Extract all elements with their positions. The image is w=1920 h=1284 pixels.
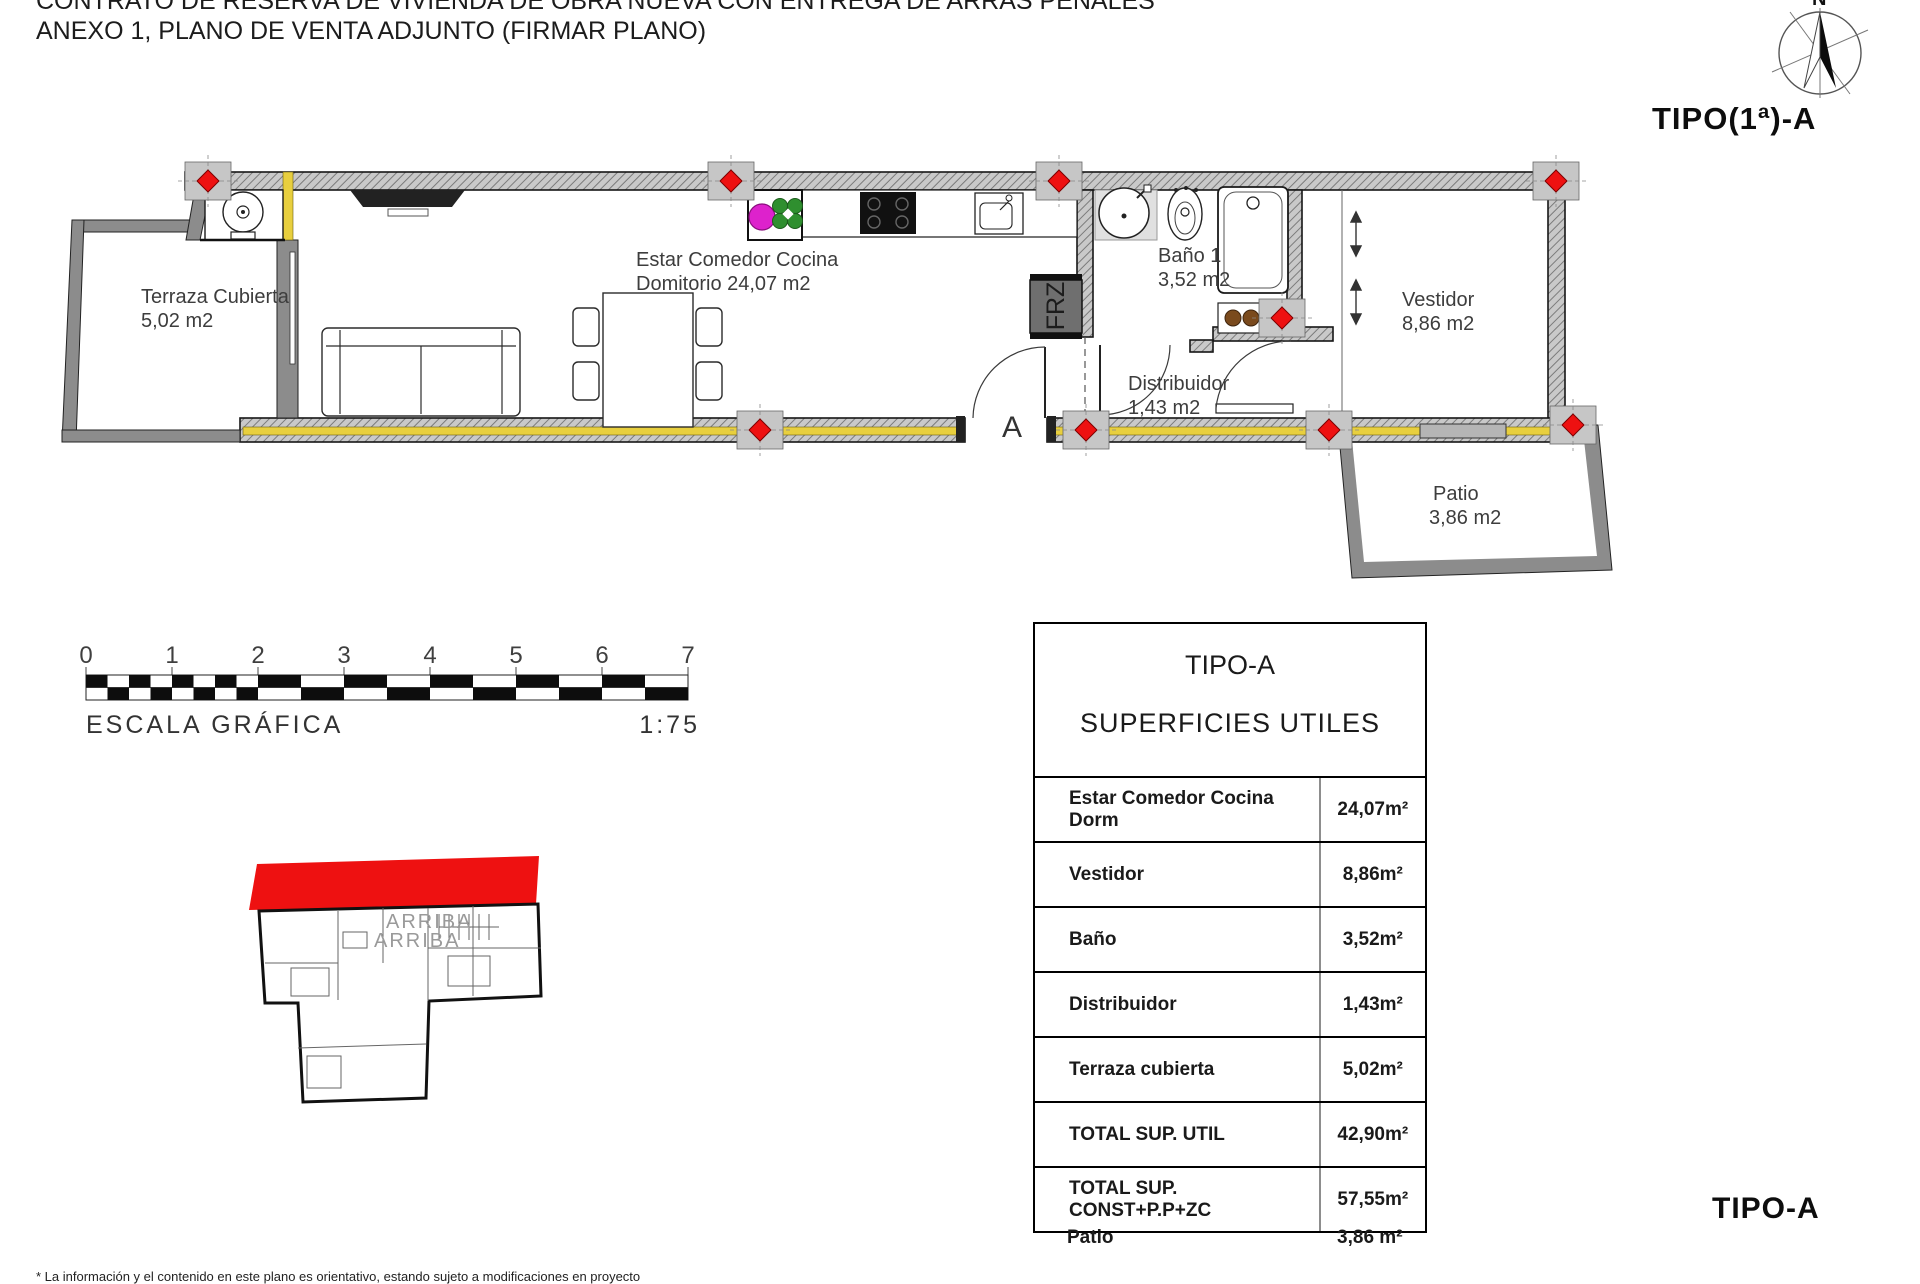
scale-tick-2: 2 xyxy=(251,642,264,669)
table-row: Distribuidor 1,43m² xyxy=(1035,973,1425,1038)
dining-table-icon xyxy=(573,293,722,427)
room-area-terraza: 5,02 m2 xyxy=(141,310,213,332)
toilet-icon xyxy=(1168,186,1202,240)
type-label-top: TIPO(1ª)-A xyxy=(1652,101,1816,137)
table-row: Terraza cubierta 5,02m² xyxy=(1035,1038,1425,1103)
stairs-label-2: ARRIBA xyxy=(374,930,460,952)
patio-extra-row: Patio 3,86 m² xyxy=(1033,1210,1423,1266)
document-header: CONTRATO DE RESERVA DE VIVIENDA DE OBRA … xyxy=(36,0,1155,46)
cooktop-icon xyxy=(860,192,916,234)
document-title-line1: CONTRATO DE RESERVA DE VIVIENDA DE OBRA … xyxy=(36,0,1155,16)
wall-yellow-strip xyxy=(283,172,293,240)
key-plan: ARRIBA ARRIBA xyxy=(249,856,541,1102)
sink-icon xyxy=(975,193,1023,234)
tv-icon xyxy=(350,190,465,216)
table-row: Vestidor 8,86m² xyxy=(1035,843,1425,908)
patio-window xyxy=(1420,424,1506,438)
scale-ratio: 1:75 xyxy=(639,711,700,739)
scale-tick-5: 5 xyxy=(509,642,522,669)
room-area-estar: Domitorio 24,07 m2 xyxy=(636,273,811,295)
scale-caption: ESCALA GRÁFICA xyxy=(86,710,343,739)
plant-shelf xyxy=(748,190,803,240)
freezer-label: FRZ xyxy=(1042,282,1070,331)
wall-top xyxy=(185,172,1565,190)
scale-tick-3: 3 xyxy=(337,642,350,669)
type-label-bottom: TIPO-A xyxy=(1712,1192,1820,1226)
compass-icon: N xyxy=(1772,0,1868,98)
room-label-distribuidor: Distribuidor xyxy=(1128,373,1229,395)
scale-tick-7: 7 xyxy=(681,642,694,669)
room-label-estar: Estar Comedor Cocina xyxy=(636,249,839,271)
table-row: Estar Comedor Cocina Dorm 24,07m² xyxy=(1035,778,1425,843)
room-label-vestidor: Vestidor xyxy=(1402,289,1475,311)
compass-north-label: N xyxy=(1812,0,1826,10)
scale-bar-blocks xyxy=(86,675,688,700)
table-row: Baño 3,52m² xyxy=(1035,908,1425,973)
disclaimer-note: * La información y el contenido en este … xyxy=(36,1269,640,1284)
closet-sliding-doors xyxy=(1342,190,1361,415)
room-label-terraza: Terraza Cubierta xyxy=(141,286,290,308)
room-area-bano: 3,52 m2 xyxy=(1158,269,1230,291)
scale-tick-4: 4 xyxy=(423,642,436,669)
sofa-icon xyxy=(322,328,520,416)
room-label-patio: Patio xyxy=(1433,483,1479,505)
floor-plan-drawing: N xyxy=(0,0,1920,1280)
table-header: TIPO-A SUPERFICIES UTILES xyxy=(1035,650,1425,778)
table-title: TIPO-A xyxy=(1035,650,1425,681)
double-arrow-icon xyxy=(1351,212,1361,324)
wall-terraza-living xyxy=(277,240,298,418)
door-jamb-right xyxy=(1047,416,1056,442)
entrance-door-a xyxy=(973,347,1045,418)
scale-bar: 0 1 2 3 4 5 6 7 xyxy=(79,642,700,739)
table-row: TOTAL SUP. UTIL 42,90m² xyxy=(1035,1103,1425,1168)
wall-right xyxy=(1548,190,1565,418)
scale-tick-6: 6 xyxy=(595,642,608,669)
bath-cabinet xyxy=(1218,303,1264,333)
table-subtitle: SUPERFICIES UTILES xyxy=(1035,708,1425,739)
plan-sheet: { "document": { "title_line1": "CONTRATO… xyxy=(0,0,1920,1280)
room-area-vestidor: 8,86 m2 xyxy=(1402,313,1474,335)
door-jamb-left xyxy=(956,416,965,442)
freezer-unit: FRZ xyxy=(1030,274,1082,339)
document-title-line2: ANEXO 1, PLANO DE VENTA ADJUNTO (FIRMAR … xyxy=(36,16,1155,46)
room-area-distribuidor: 1,43 m2 xyxy=(1128,397,1200,419)
knob-icon xyxy=(1243,310,1259,326)
section-a-label: A xyxy=(1002,411,1022,444)
wall-stub xyxy=(1190,340,1213,352)
room-label-bano: Baño 1 xyxy=(1158,245,1221,267)
surface-area-table: TIPO-A SUPERFICIES UTILES Estar Comedor … xyxy=(1033,622,1427,1233)
magenta-decor-icon xyxy=(749,204,775,230)
scale-tick-0: 0 xyxy=(79,642,92,669)
room-area-patio: 3,86 m2 xyxy=(1429,507,1501,529)
scale-tick-1: 1 xyxy=(165,642,178,669)
unit-highlight xyxy=(249,856,539,910)
bathroom-sink-icon xyxy=(1095,185,1157,240)
knob-icon xyxy=(1225,310,1241,326)
